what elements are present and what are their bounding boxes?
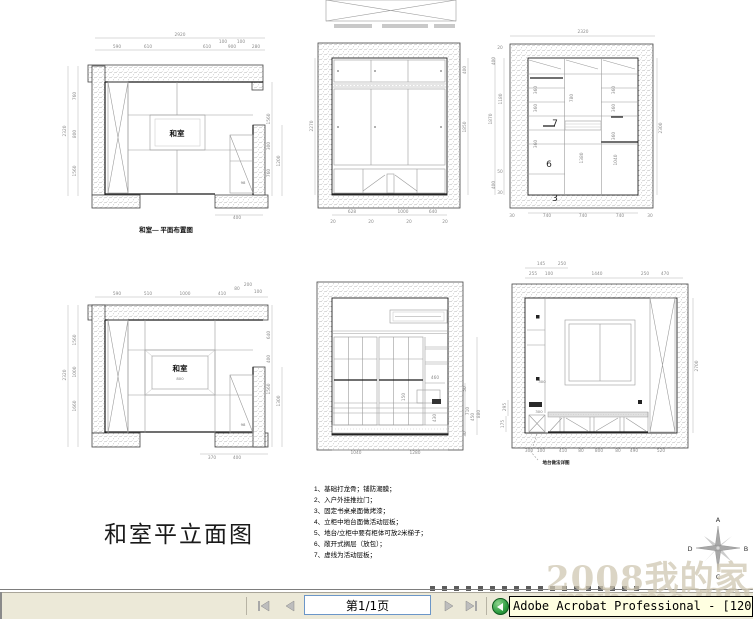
taskbar-button[interactable]: Adobe Acrobat Professional - [1205 bbox=[509, 596, 753, 617]
dim-label: 50 bbox=[497, 169, 503, 175]
dim-label: 400 bbox=[266, 355, 272, 363]
dim-label: 610 bbox=[203, 44, 211, 50]
acrobat-document-view: 2920 590 610 610 100 900 100 280 2320 76… bbox=[0, 0, 753, 619]
dim-label: 640 bbox=[429, 209, 437, 215]
dim-label: 410 bbox=[218, 291, 226, 297]
previous-page-button[interactable] bbox=[279, 596, 303, 616]
dim-label: 360 bbox=[533, 104, 539, 112]
dim-label: 1200 bbox=[276, 155, 282, 166]
note-item: 3、固定书桌桌面做烤漆； bbox=[314, 506, 514, 517]
shelf-number: 7 bbox=[552, 119, 558, 129]
dim-label: 400 bbox=[491, 57, 497, 65]
compass-rose: A B C D bbox=[685, 508, 753, 582]
detail-callout: 地台做法详图 bbox=[543, 459, 570, 466]
dim-label: 300 bbox=[266, 142, 272, 150]
dim-label: 628 bbox=[348, 209, 356, 215]
dim-label: 20 bbox=[406, 219, 412, 225]
room-label: 和室 bbox=[173, 363, 188, 373]
dim-label: 100 bbox=[545, 271, 553, 277]
construction-notes: 1、基础打龙骨；铺防潮膜； 2、入户外挂推拉门； 3、固定书桌桌面做烤漆； 4、… bbox=[314, 484, 514, 561]
window-left-edge bbox=[0, 592, 2, 619]
dim-label: 1380 bbox=[579, 152, 585, 163]
ceiling-plan-drawing: 590 510 1000 410 80 200 100 2320 1560 10… bbox=[60, 275, 306, 470]
dim-label: 20 bbox=[330, 219, 336, 225]
dim-label: 400 bbox=[462, 66, 468, 74]
dim-label: 760 bbox=[266, 169, 272, 177]
dim-label: 880 bbox=[476, 410, 480, 418]
dim-label: 640 bbox=[266, 331, 272, 339]
dim-label: 20 bbox=[368, 219, 374, 225]
note-item: 2、入户外挂推拉门； bbox=[314, 495, 514, 506]
dim-label: 1870 bbox=[488, 113, 494, 124]
dim-label: 1040 bbox=[351, 450, 362, 456]
next-page-button[interactable] bbox=[436, 596, 460, 616]
dim-label: 590 bbox=[113, 291, 121, 297]
dim-label: 1000 bbox=[180, 291, 191, 297]
dim-label: 740 bbox=[579, 213, 587, 219]
shoji-elevation-drawing: 460 150 430 50 710 450 880 30 1040 1280 bbox=[305, 275, 480, 470]
dim-label: 400 bbox=[491, 181, 497, 189]
first-page-icon bbox=[254, 599, 274, 613]
sheet-title: 和室平立面图 bbox=[104, 515, 254, 549]
dim-label: 2920 bbox=[175, 32, 186, 38]
dim-label: 2270 bbox=[309, 120, 315, 131]
dim-label: 470 bbox=[661, 271, 669, 277]
dim-label: 100 bbox=[219, 39, 227, 45]
dim-label: 400 bbox=[233, 455, 241, 461]
dim-label: 360 bbox=[611, 86, 617, 94]
dim-label: 100 bbox=[237, 39, 245, 45]
previous-page-icon bbox=[281, 599, 301, 613]
last-page-icon bbox=[461, 599, 481, 613]
dim-label: 250 bbox=[558, 261, 566, 267]
compass-label-east: B bbox=[744, 545, 748, 553]
note-item: 7、虚线为活动层板； bbox=[314, 550, 514, 561]
window-elevation-drawing: 145 250 255 100 1440 250 470 300 300 270… bbox=[498, 256, 723, 481]
first-page-button[interactable] bbox=[252, 596, 276, 616]
cabinet-label: 98 bbox=[241, 180, 246, 185]
dim-label: 250 bbox=[641, 271, 649, 277]
shelf-number: 3 bbox=[552, 194, 558, 204]
dim-label: 360 bbox=[611, 132, 617, 140]
dim-label: 80 bbox=[615, 448, 621, 454]
dim-label: 590 bbox=[113, 44, 121, 50]
dim-label: 30 bbox=[462, 431, 468, 437]
dim-label: 800 bbox=[176, 376, 184, 381]
dim-label: 490 bbox=[630, 448, 638, 454]
dim-label: 510 bbox=[144, 291, 152, 297]
dim-label: 280 bbox=[252, 44, 260, 50]
dim-label: 255 bbox=[529, 271, 537, 277]
separator bbox=[246, 597, 247, 615]
dim-label: 1560 bbox=[72, 334, 78, 345]
wardrobe-elevation-drawing: 2270 400 1850 628 1000 640 20 20 20 20 bbox=[305, 28, 480, 228]
page-indicator-field[interactable] bbox=[304, 595, 431, 615]
back-arrow-icon bbox=[497, 603, 503, 611]
room-label: 和室 bbox=[170, 128, 185, 138]
dim-label: 1560 bbox=[72, 165, 78, 176]
dim-label: 300 bbox=[538, 379, 546, 384]
dim-label: 295 bbox=[502, 403, 508, 411]
dim-label: 460 bbox=[431, 375, 439, 381]
shelf-elevation-drawing: 2320 7 6 3 360 360 360 780 360 360 360 1… bbox=[483, 24, 683, 224]
dim-label: 30 bbox=[509, 213, 515, 219]
dim-label: 1560 bbox=[266, 113, 272, 124]
dim-label: 360 bbox=[533, 140, 539, 148]
dim-label: 1850 bbox=[462, 121, 468, 132]
compass-label-west: D bbox=[687, 545, 692, 553]
dim-label: 370 bbox=[208, 455, 216, 461]
note-item: 5、地台/立柜中要有柜体可放2米梯子； bbox=[314, 528, 514, 539]
dim-label: 1180 bbox=[498, 93, 504, 104]
acrobat-taskbar-icon[interactable] bbox=[492, 598, 509, 615]
note-item: 4、立柜中地台面做活动层板； bbox=[314, 517, 514, 528]
compass-label-south: C bbox=[716, 573, 721, 581]
dim-label: 520 bbox=[657, 448, 665, 454]
dim-label: 175 bbox=[500, 420, 506, 428]
dim-label: 300 bbox=[535, 409, 543, 414]
dim-label: 2700 bbox=[694, 360, 700, 371]
dim-label: 2300 bbox=[658, 122, 664, 133]
dim-label: 1000 bbox=[72, 366, 78, 377]
dim-label: 800 bbox=[72, 130, 78, 138]
dim-label: 610 bbox=[144, 44, 152, 50]
dim-label: 800 bbox=[595, 448, 603, 454]
dim-label: 1000 bbox=[398, 209, 409, 215]
dim-label: 80 bbox=[578, 448, 584, 454]
dim-label: 760 bbox=[72, 92, 78, 100]
dim-label: 1440 bbox=[592, 271, 603, 277]
dim-label: 360 bbox=[611, 104, 617, 112]
dim-label: 740 bbox=[616, 213, 624, 219]
dim-label: 50 bbox=[462, 386, 468, 392]
dim-label: 1660 bbox=[72, 400, 78, 411]
dim-label: 1560 bbox=[266, 383, 272, 394]
dim-label: 1300 bbox=[276, 395, 282, 406]
dim-label: 430 bbox=[432, 414, 438, 422]
dim-label: 410 bbox=[559, 448, 567, 454]
dim-label: 740 bbox=[543, 213, 551, 219]
drawing-caption: 和室— 平面布置图 bbox=[138, 225, 193, 234]
dim-label: 100 bbox=[254, 289, 262, 295]
separator bbox=[486, 597, 487, 615]
dim-label: 20 bbox=[497, 45, 503, 51]
last-page-button[interactable] bbox=[459, 596, 483, 616]
dim-label: 150 bbox=[401, 393, 407, 401]
floor-plan-drawing: 2920 590 610 610 100 900 100 280 2320 76… bbox=[60, 26, 306, 238]
dim-label: 200 bbox=[244, 282, 252, 288]
compass-label-north: A bbox=[716, 516, 721, 524]
note-item: 6、敞开式搁层（放包）； bbox=[314, 539, 514, 550]
dim-label: 30 bbox=[497, 190, 503, 196]
dim-label: 2320 bbox=[62, 125, 68, 136]
dim-label: 20 bbox=[442, 219, 448, 225]
dim-label: 450 bbox=[470, 413, 476, 421]
next-page-icon bbox=[438, 599, 458, 613]
shelf-number: 6 bbox=[546, 160, 552, 170]
window-bottom-edge bbox=[0, 589, 753, 590]
cabinet-label: 98 bbox=[241, 422, 246, 427]
dim-label: 30 bbox=[647, 213, 653, 219]
dim-label: 1040 bbox=[613, 154, 619, 165]
note-item: 1、基础打龙骨；铺防潮膜； bbox=[314, 484, 514, 495]
dim-label: 360 bbox=[533, 86, 539, 94]
dim-label: 400 bbox=[233, 215, 241, 221]
partial-drawing-top bbox=[322, 0, 462, 30]
dim-label: 1280 bbox=[410, 450, 421, 456]
dim-label: 145 bbox=[537, 261, 545, 267]
dim-label: 100 bbox=[537, 448, 545, 454]
dim-label: 2320 bbox=[578, 29, 589, 35]
dim-label: 2320 bbox=[62, 369, 68, 380]
dim-label: 80 bbox=[234, 286, 240, 292]
dim-label: 780 bbox=[569, 94, 575, 102]
dim-label: 900 bbox=[228, 44, 236, 50]
